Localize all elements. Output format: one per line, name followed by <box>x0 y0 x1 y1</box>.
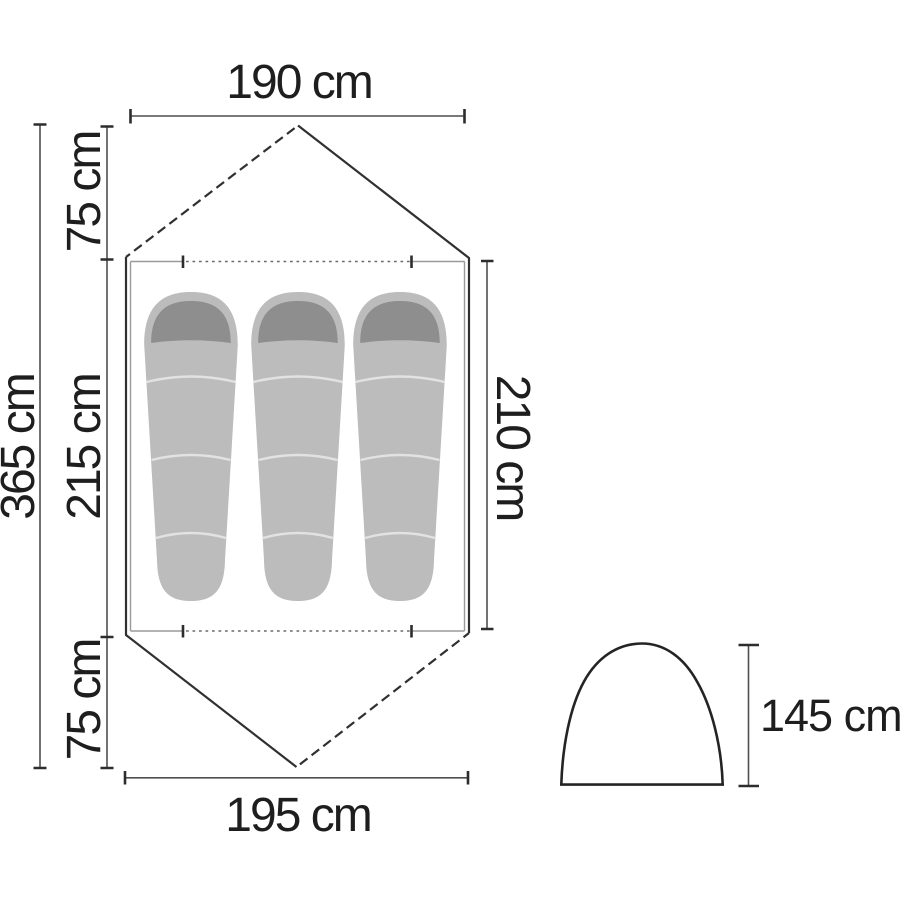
svg-text:365 cm: 365 cm <box>0 374 45 519</box>
svg-text:210 cm: 210 cm <box>486 375 539 520</box>
svg-text:75 cm: 75 cm <box>58 640 111 761</box>
svg-text:145 cm: 145 cm <box>760 690 900 741</box>
svg-text:215 cm: 215 cm <box>58 374 111 519</box>
svg-text:75 cm: 75 cm <box>58 132 111 253</box>
svg-text:190 cm: 190 cm <box>226 56 371 109</box>
svg-text:195 cm: 195 cm <box>225 789 370 842</box>
